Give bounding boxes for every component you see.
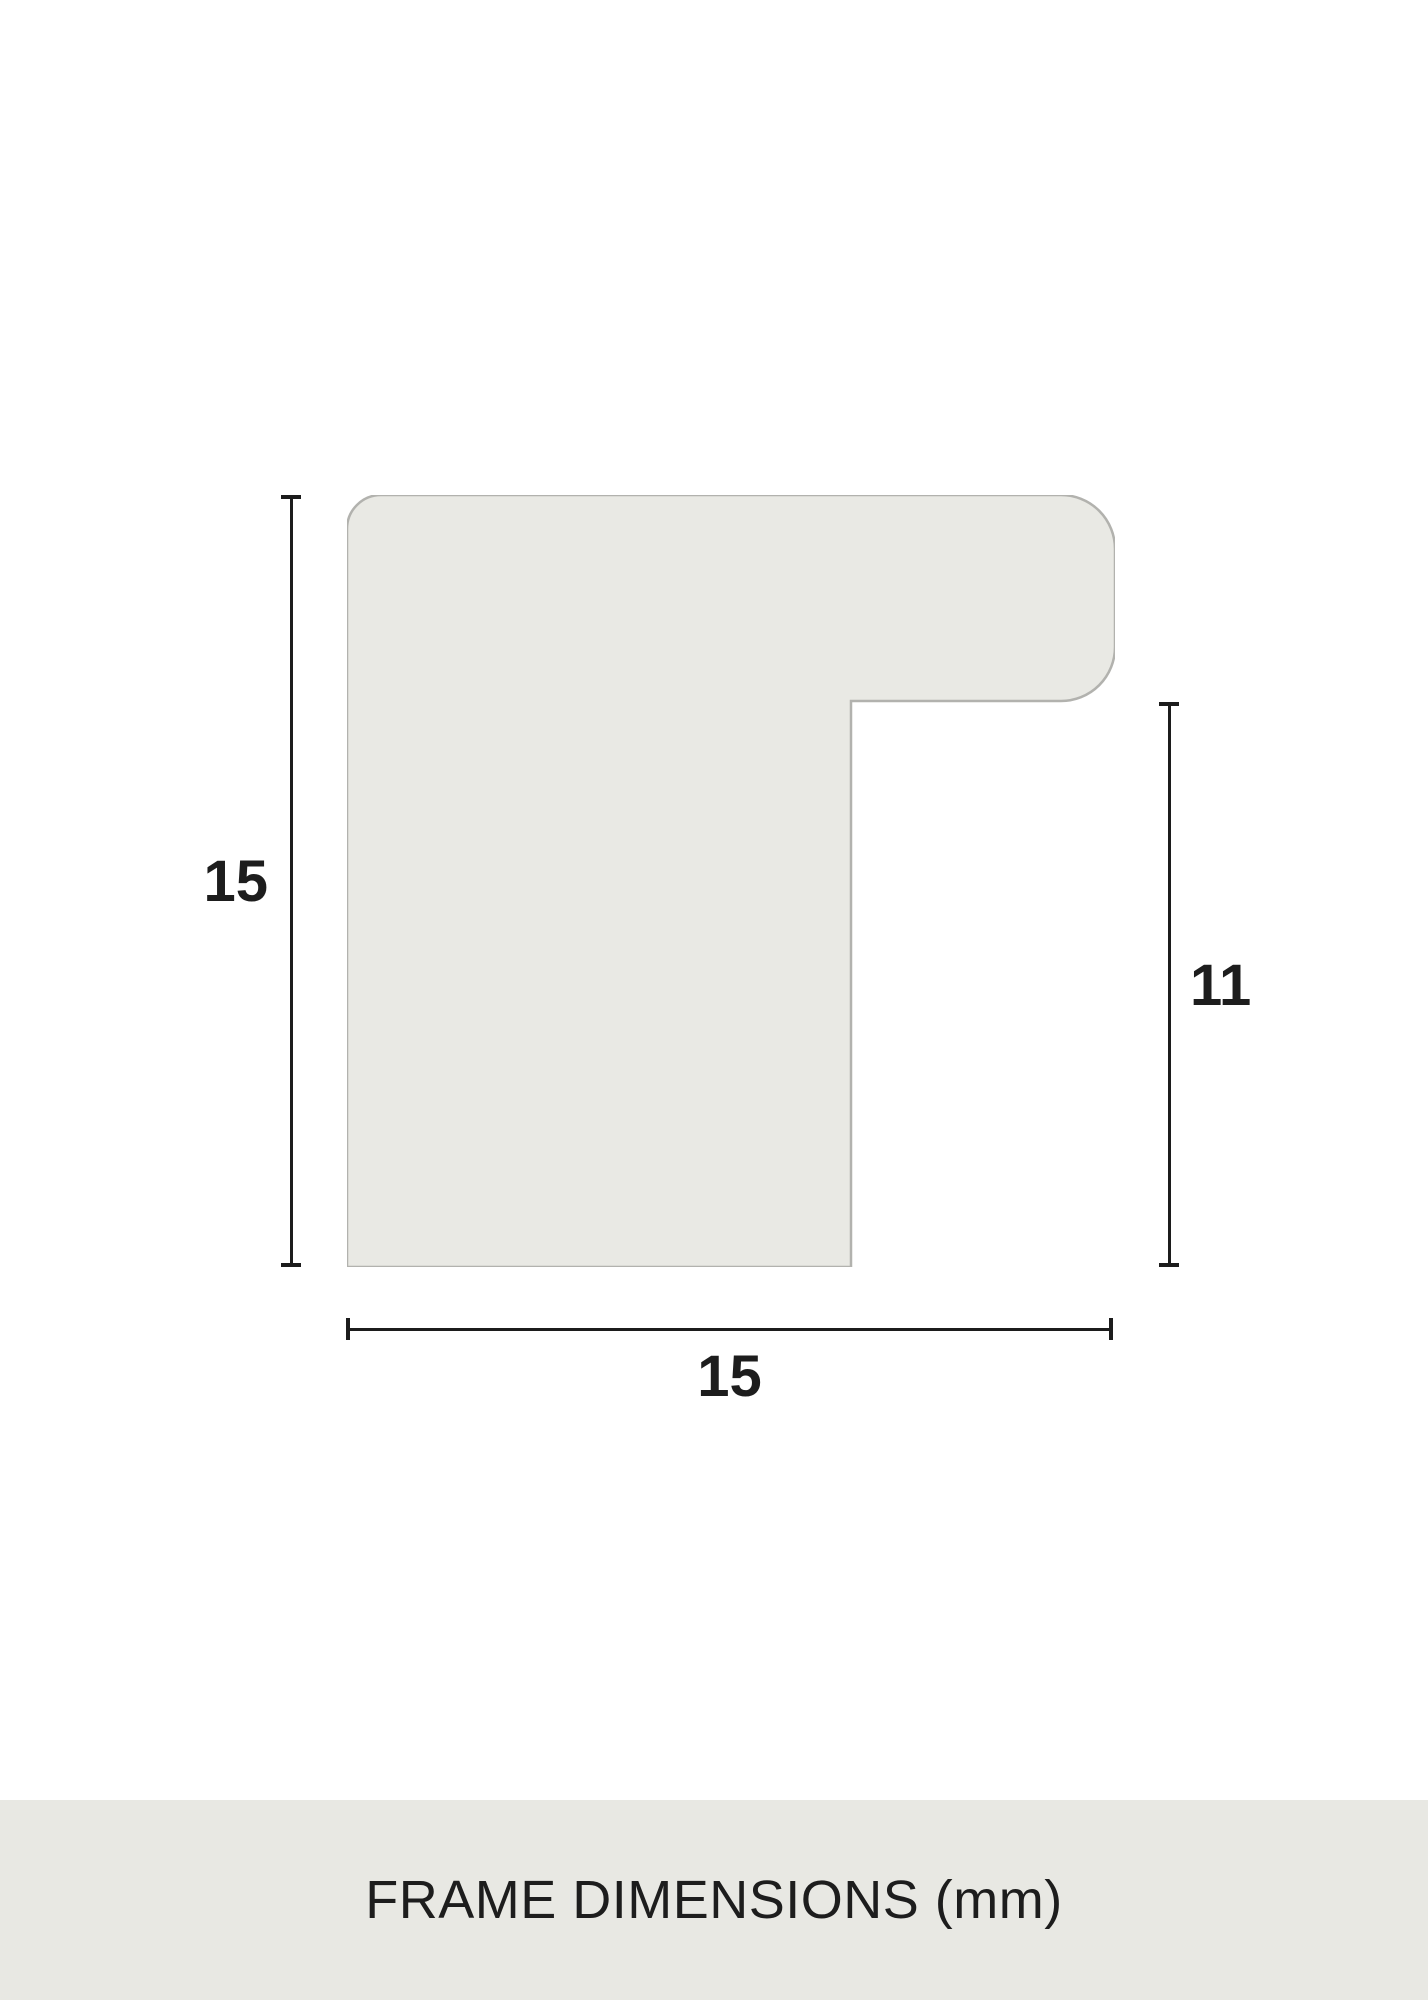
frame-profile-shape [347,495,1115,1267]
dimension-line [346,1328,1113,1331]
dimension-tick [1159,1263,1179,1267]
footer-caption-bar: FRAME DIMENSIONS (mm) [0,1800,1428,2000]
bottom-width-dimension [346,1318,1113,1340]
width-value-label: 15 [346,1348,1113,1406]
frame-dimension-diagram: 15 11 15 FRAME DIMENSIONS (mm) [0,0,1428,2000]
right-depth-dimension [1159,702,1179,1267]
depth-value-label: 11 [1190,957,1340,1015]
dimension-line [290,495,293,1267]
frame-profile-path [347,495,1115,1267]
height-value-label: 15 [120,853,268,911]
footer-caption: FRAME DIMENSIONS (mm) [365,1873,1062,1927]
dimension-tick [1109,1318,1113,1340]
dimension-tick [281,1263,301,1267]
left-height-dimension [281,495,301,1267]
dimension-line [1168,702,1171,1267]
